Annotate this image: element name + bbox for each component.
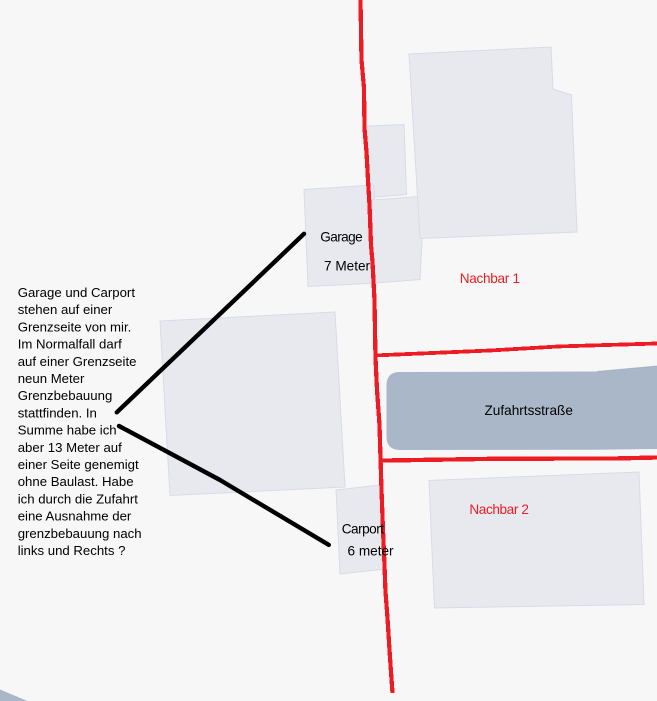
svg-text:grenzbebauung nach: grenzbebauung nach: [18, 526, 142, 541]
svg-text:Garage und Carport: Garage und Carport: [18, 285, 136, 300]
svg-text:Grenzbebauung: Grenzbebauung: [18, 388, 113, 403]
svg-text:Nachbar 2: Nachbar 2: [469, 502, 528, 517]
svg-text:Nachbar 1: Nachbar 1: [460, 271, 520, 286]
svg-text:Im Normalfall darf: Im Normalfall darf: [18, 337, 122, 352]
svg-text:Grenzseite von mir.: Grenzseite von mir.: [18, 319, 132, 334]
svg-text:neun Meter: neun Meter: [18, 371, 85, 386]
svg-text:stehen auf einer: stehen auf einer: [18, 302, 113, 317]
svg-text:auf einer Grenzseite: auf einer Grenzseite: [18, 354, 137, 369]
svg-text:6 meter: 6 meter: [348, 544, 395, 559]
svg-text:eine Ausnahme der: eine Ausnahme der: [18, 509, 132, 524]
svg-text:Summe habe ich: Summe habe ich: [18, 423, 117, 438]
svg-text:einer Seite genemigt: einer Seite genemigt: [18, 457, 139, 472]
svg-text:Carport: Carport: [342, 522, 385, 537]
svg-text:ich durch die Zufahrt: ich durch die Zufahrt: [18, 491, 139, 506]
svg-text:ohne Baulast. Habe: ohne Baulast. Habe: [18, 474, 134, 489]
svg-text:stattfinden. In: stattfinden. In: [18, 405, 97, 420]
svg-text:aber 13 Meter auf: aber 13 Meter auf: [18, 440, 122, 455]
svg-text:Garage: Garage: [320, 229, 362, 244]
svg-text:Zufahrtsstraße: Zufahrtsstraße: [485, 403, 573, 418]
svg-text:links und Rechts ?: links und Rechts ?: [18, 543, 126, 558]
svg-text:7 Meter: 7 Meter: [324, 259, 371, 274]
